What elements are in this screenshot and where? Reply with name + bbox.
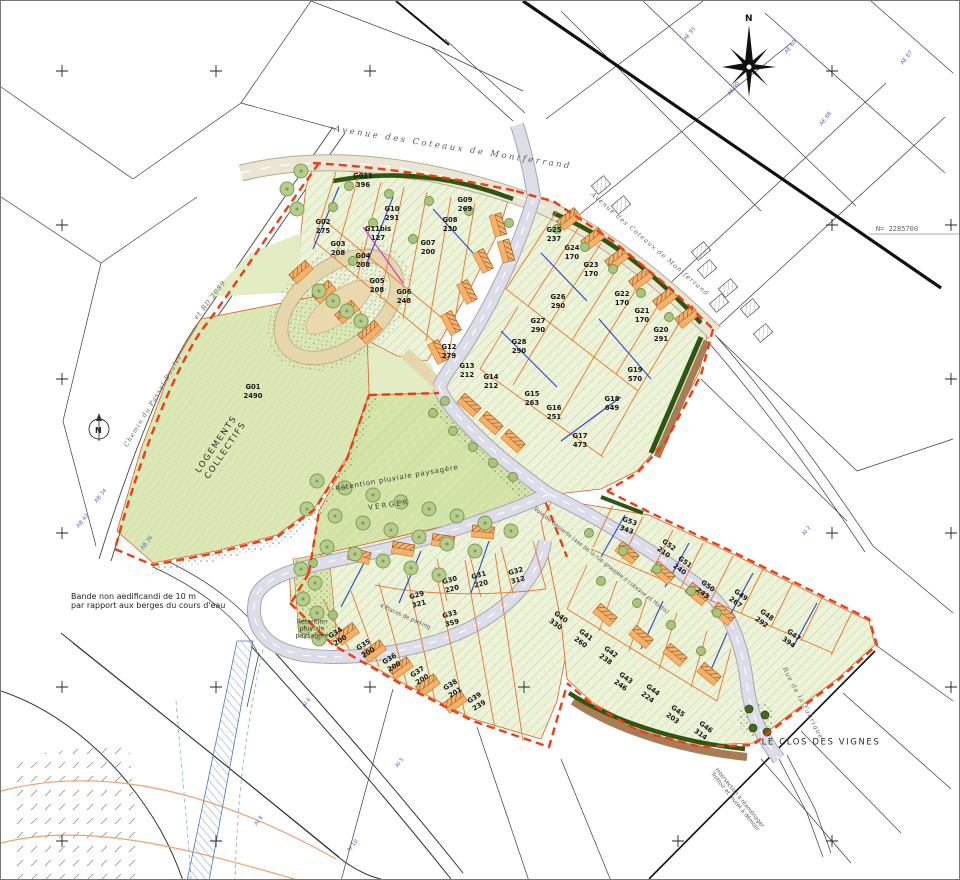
site-plan-map: N N G01 2490G02 275G03 208G04 208G05 208…: [0, 0, 960, 880]
hatched-field: [9, 743, 141, 879]
compass-north-label: N: [745, 14, 753, 24]
map-geometry: N N: [1, 1, 960, 880]
north-arrow-label: N: [95, 426, 102, 435]
